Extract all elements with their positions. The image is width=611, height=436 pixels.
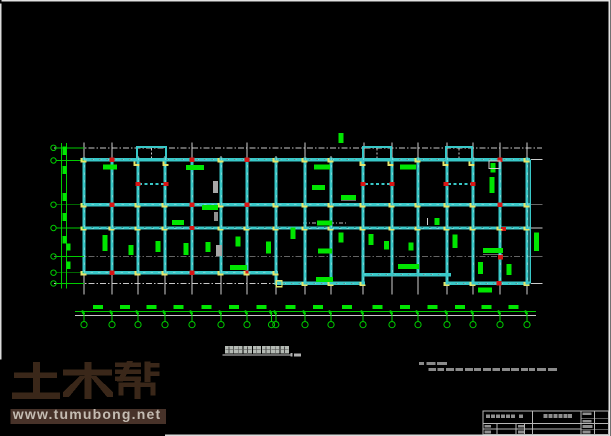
- svg-text:www.tumubong.net: www.tumubong.net: [12, 406, 162, 422]
